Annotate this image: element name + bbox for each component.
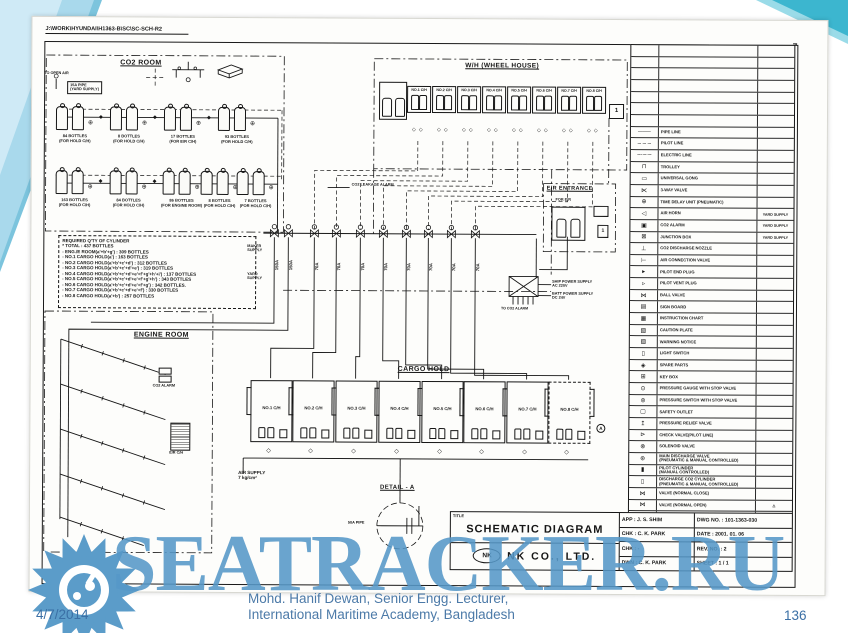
legend-description: PILOT VENT PLUG <box>658 278 757 289</box>
wh-release-cabinet: NO.5 C/H◇◇ <box>507 86 531 113</box>
legend-row <box>631 56 794 69</box>
legend-row: ⊓TROLLEY <box>631 161 794 174</box>
control-box-icon <box>321 429 329 438</box>
wh-cabinet-label: NO.4 C/H <box>482 88 506 92</box>
legend-row: ⋈VALVE (NORMAL CLOSE) <box>629 487 792 500</box>
legend-remark: YARD SUPPLY <box>757 209 793 220</box>
legend-remark <box>756 477 792 488</box>
legend-description <box>659 115 758 126</box>
cabinet-valves-icon: ◇◇ <box>483 127 505 133</box>
legend-description: UNIVERSAL GONG <box>659 173 758 184</box>
legend-description <box>659 69 758 80</box>
legend-symbol-icon: ⊗ <box>629 441 657 452</box>
cabinet-valves-icon: ◇◇ <box>583 128 605 134</box>
legend-row: ▹PILOT VENT PLUG <box>630 277 793 290</box>
legend-remark <box>758 104 794 115</box>
legend-row <box>631 45 794 57</box>
pilot-cylinder-icon <box>519 95 527 110</box>
legend-description: MAIN DISCHARGE VALVE (PNEUMATIC & MANUAL… <box>657 453 756 464</box>
co2-room-title: CO2 ROOM <box>120 59 161 67</box>
cargo-hold-label: NO.8 C/H <box>549 407 589 412</box>
co2-bottle-icon <box>234 107 246 131</box>
control-box-icon <box>492 430 500 439</box>
co2-bottle-icon <box>126 106 138 130</box>
slide-caption: Mohd. Hanif Dewan, Senior Engg. Lecturer… <box>248 591 515 623</box>
legend-remark <box>757 314 793 325</box>
legend-row: ◈SPARE PARTS <box>630 359 793 372</box>
required-qty-line: - NO.8 CARGO HOLD(a'+b') : 257 BOTTLES <box>62 293 252 299</box>
legend-row: ⊕TIME DELAY UNIT (PNEUMATIC) <box>631 196 794 209</box>
legend-symbol-icon: ▨ <box>630 336 658 347</box>
co2-bottle-icon <box>300 427 307 438</box>
legend-row: ▮PILOT CYLINDER (MANUAL CONTROLLED) <box>629 464 792 477</box>
pilot-cylinder-icon <box>436 95 444 110</box>
legend-symbol-icon <box>631 103 659 114</box>
legend-remark <box>757 337 793 348</box>
co2-bottle-icon <box>126 170 138 194</box>
pilot-cylinder-icon <box>570 219 580 238</box>
legend-remark: YARD SUPPLY <box>757 232 793 243</box>
legend-symbol-icon <box>631 45 659 56</box>
legend-remark <box>757 279 793 290</box>
pilot-cylinder-icon <box>494 95 502 110</box>
pipe-size-label: 70A <box>475 263 480 271</box>
air-supply-label: AIR SUPPLY 7 kg/cm² <box>238 470 265 481</box>
legend-remark <box>757 360 793 371</box>
hold-cylinders <box>386 428 415 439</box>
symbol-legend-table: ───PIPE LINE– – –PILOT LINE–·–·–ELECTRIC… <box>628 44 796 525</box>
legend-symbol-icon: ↥ <box>629 418 657 429</box>
co2-bottle-icon <box>110 106 122 130</box>
legend-row: ───PIPE LINE <box>631 126 794 139</box>
cargo-hold-label: NO.6 C/H <box>464 406 504 411</box>
scanned-schematic: J:\WORK\HYUNDAI\H1363-B\SC\SC-SCH-R2 7 C… <box>28 16 828 596</box>
group-valve-icon: ⊕ <box>142 120 147 126</box>
bottle-pair: ⊕ <box>218 104 258 131</box>
bottle-group-label: 163 BOTTLES (FOR HOLD C/H) <box>51 198 99 208</box>
bottle-group-label: 93 BOTTLES (FOR HOLD C/H) <box>213 135 261 145</box>
legend-remark <box>758 197 794 208</box>
slide: { "slide": { "date": "4/7/2014", "page":… <box>0 0 848 633</box>
legend-symbol-icon: ▯ <box>629 476 657 487</box>
pipe-size-label: 70A <box>406 263 411 271</box>
er-cabinet-label: FOR E/R <box>556 198 571 202</box>
pipe-size-box: 15A PIPE (YARD SUPPLY) <box>67 81 102 94</box>
legend-remark <box>758 139 794 150</box>
legend-row: ⋈BALL VALVE <box>630 289 793 302</box>
cabinet-valves-icon: ◇◇ <box>558 128 580 134</box>
pilot-cylinder-cabinet <box>379 82 407 120</box>
line-valve-icon: ◆ <box>153 115 157 121</box>
er-release-cabinet <box>551 207 585 241</box>
drawing-file-path: J:\WORK\HYUNDAI\H1363-B\SC\SC-SCH-R2 <box>45 26 188 35</box>
group-valve-icon: ⊕ <box>196 120 201 126</box>
maker-supply-label: MAKER SUPPLY <box>247 244 262 253</box>
co2-bottle-icon <box>267 427 274 438</box>
co2-bottle-icon <box>56 170 68 194</box>
page-number: 136 <box>784 608 807 623</box>
pilot-cylinder-icon <box>544 96 552 111</box>
legend-symbol-icon: ⊓ <box>631 162 659 173</box>
pipe-size-label: 150A <box>274 260 279 270</box>
legend-symbol-icon: ◁ <box>630 208 658 219</box>
co2-bottle-icon <box>471 428 478 439</box>
pipe-size-label: 70A <box>360 263 365 271</box>
pipe-size-label: 70A <box>314 263 319 271</box>
legend-row <box>631 79 794 92</box>
co2-bottle-group: ⊕163 BOTTLES (FOR HOLD C/H) <box>56 167 96 208</box>
legend-row: –·–·–ELECTRIC LINE <box>631 149 794 162</box>
legend-remark <box>756 407 792 418</box>
legend-remark <box>757 384 793 395</box>
legend-symbol-icon: ⋈ <box>629 500 657 511</box>
legend-description <box>659 80 758 91</box>
cargo-hold-label: NO.7 C/H <box>507 406 547 411</box>
cargo-hold-title: CARGO HOLD <box>398 366 450 374</box>
co2-bottle-icon <box>72 170 84 194</box>
cabinet-valves-icon: ◇◇ <box>408 127 430 133</box>
legend-row: ▧CAUTION PLATE <box>630 324 793 337</box>
legend-row: ⋉3-WAY VALVE <box>631 184 794 197</box>
legend-description: BALL VALVE <box>658 290 757 301</box>
co2-bottle-icon <box>72 106 84 130</box>
legend-description: SIGN BOARD <box>658 302 757 313</box>
legend-remark <box>757 325 793 336</box>
legend-remark <box>758 162 794 173</box>
legend-remark: YARD SUPPLY <box>757 221 793 232</box>
legend-description: CO2 ALARM <box>658 220 757 231</box>
group-valve-icon: ⊕ <box>195 184 200 190</box>
legend-description: VALVE (NORMAL CLOSE) <box>657 488 756 499</box>
co2-bottle-icon <box>343 428 350 439</box>
legend-description: PRESSURE SWITCH WITH STOP VALVE <box>657 395 756 406</box>
legend-remark <box>758 174 794 185</box>
legend-description: PRESSURE GAUGE WITH STOP VALVE <box>658 383 757 394</box>
hold-cylinders <box>429 428 458 439</box>
legend-symbol-icon: ◈ <box>630 360 658 371</box>
ship-power-label: SHIP POWER SUPPLY AC 220V <box>552 280 592 289</box>
legend-description: 3-WAY VALVE <box>659 185 758 196</box>
legend-row: ⊞KEY BOX <box>630 370 793 383</box>
legend-row: ▣CO2 ALARMYARD SUPPLY <box>630 219 793 232</box>
cargo-hold-label: NO.4 C/H <box>379 406 419 411</box>
legend-row: ⊚PRESSURE SWITCH WITH STOP VALVE <box>629 394 792 407</box>
bottle-pair: ⊕ <box>201 168 241 195</box>
co2-bottle-icon <box>556 429 563 440</box>
legend-symbol-icon: ▢ <box>629 406 657 417</box>
legend-description: PILOT CYLINDER (MANUAL CONTROLLED) <box>657 465 756 476</box>
wh-release-cabinet: NO.2 C/H◇◇ <box>432 86 456 113</box>
group-valve-icon: ⊕ <box>269 185 274 191</box>
legend-description: AIR CONNECTION VALVE <box>658 255 757 266</box>
legend-remark <box>757 244 793 255</box>
hold-valve-icon: ◇ <box>394 448 399 455</box>
legend-description: CO2 DISCHARGE NOZZLE <box>658 243 757 254</box>
bottle-group-label: 17 BOTTLES (FOR E/R C/H) <box>159 135 207 145</box>
hold-valve-icon: ◇ <box>437 448 442 455</box>
legend-symbol-icon: ⊙ <box>630 383 658 394</box>
legend-description: ELECTRIC LINE <box>659 150 758 161</box>
legend-row: ⊙PRESSURE GAUGE WITH STOP VALVE <box>630 382 793 395</box>
co2-bottle-icon <box>179 171 191 195</box>
cabinet-valves-icon: ◇◇ <box>433 127 455 133</box>
wh-cabinet-label: NO.7 C/H <box>557 88 581 92</box>
legend-description: SPARE PARTS <box>658 360 757 371</box>
legend-row: ▦INSTRUCTION CHART <box>630 312 793 325</box>
er-release-box <box>170 423 190 451</box>
co2-bottle-icon <box>386 428 393 439</box>
cargo-hold-unit: NO.7 C/H◇ <box>506 381 548 443</box>
to-co2-alarm-label: TO CO2 ALARM <box>501 306 528 310</box>
co2-alarm-icon <box>159 368 172 375</box>
legend-description <box>659 57 758 68</box>
legend-remark <box>757 372 793 383</box>
hold-cylinders <box>300 427 329 438</box>
wh-cabinet-label: NO.1 C/H <box>407 87 431 91</box>
co2-bottle-group: ⊕8 BOTTLES (FOR HOLD C/H) <box>110 103 150 144</box>
co2-bottle-icon <box>523 428 530 439</box>
cabinet-valves-icon: ◇◇ <box>508 127 530 133</box>
er-mark-box: 1 <box>597 225 608 238</box>
legend-row <box>631 114 794 127</box>
vent-label: TO OPEN AIR <box>44 71 69 75</box>
co2-bottle-icon <box>480 428 487 439</box>
cargo-hold-unit: NO.1 C/H◇ <box>250 380 292 442</box>
control-box-icon <box>364 430 372 439</box>
hold-cylinders <box>471 428 500 439</box>
legend-description: PRESSURE RELIEF VALVE <box>657 418 756 429</box>
wh-cabinet-label: NO.2 C/H <box>432 88 456 92</box>
legend-symbol-icon: ▧ <box>630 325 658 336</box>
legend-symbol-icon: ⊞ <box>630 371 658 382</box>
co2-bottle-icon <box>258 427 265 438</box>
legend-symbol-icon <box>631 57 659 68</box>
bottle-pair: ⊕ <box>56 167 96 194</box>
legend-row: ▸PILOT END PLUG <box>630 266 793 279</box>
pilot-cylinder-icon <box>536 96 544 111</box>
legend-row: – – –PILOT LINE <box>631 137 794 150</box>
legend-row: ⊛MAIN DISCHARGE VALVE (PNEUMATIC & MANUA… <box>629 452 792 465</box>
co2-bottle-icon <box>217 171 229 195</box>
bottle-pair: ⊕ <box>110 103 150 130</box>
legend-row: ▯LIGHT SWITCH <box>630 347 793 360</box>
wh-release-cabinet: NO.7 C/H◇◇ <box>557 87 581 114</box>
er-box-label: E/R C/H <box>169 451 183 455</box>
legend-description: PILOT END PLUG <box>658 267 757 278</box>
legend-symbol-icon: ⊳ <box>629 430 657 441</box>
co2-bottle-group: ⊕7 BOTTLES (FOR HOLD C/H) <box>237 168 277 209</box>
co2-bottle-icon <box>218 107 230 131</box>
legend-remark <box>757 267 793 278</box>
pilot-cylinder-icon <box>461 95 469 110</box>
legend-symbol-icon: ▭ <box>631 173 659 184</box>
legend-remark <box>758 116 794 127</box>
control-box-icon <box>577 431 585 440</box>
legend-symbol-icon: ⊕ <box>631 197 659 208</box>
yard-supply-label: YARD SUPPLY <box>247 272 262 281</box>
hold-cylinders <box>514 428 543 439</box>
caption-line-1: Mohd. Hanif Dewan, Senior Engg. Lecturer… <box>248 591 515 607</box>
pilot-cylinder-icon <box>556 219 566 238</box>
legend-row: ▨WARNING NOTICE <box>630 335 793 348</box>
legend-symbol-icon: ▦ <box>630 313 658 324</box>
legend-description: WARNING NOTICE <box>658 337 757 348</box>
pilot-cylinder-icon <box>469 95 477 110</box>
pilot-cylinder-icon <box>381 98 391 117</box>
engine-alarm-label: CO2 ALARM <box>153 384 175 388</box>
co2-bottle-icon <box>309 427 316 438</box>
hold-cylinders <box>343 428 372 439</box>
hold-valve-icon: ◇ <box>564 449 569 456</box>
engine-room-title: ENGINE ROOM <box>134 331 189 339</box>
caption-line-2: International Maritime Academy, Banglade… <box>248 607 515 623</box>
legend-remark <box>757 349 793 360</box>
legend-description: KEY BOX <box>658 372 757 383</box>
detail-a-title: DETAIL - A <box>380 485 415 492</box>
legend-symbol-icon: ⊢ <box>630 255 658 266</box>
pilot-cylinder-icon <box>486 95 494 110</box>
legend-remark <box>756 489 792 500</box>
legend-description: JUNCTION BOX <box>658 232 757 243</box>
group-valve-icon: ⊕ <box>142 184 147 190</box>
co2-bottle-icon <box>237 171 249 195</box>
co2-bottle-icon <box>201 171 213 195</box>
cargo-hold-label: NO.1 C/H <box>251 405 291 410</box>
wh-cabinet-label: NO.5 C/H <box>507 88 531 92</box>
line-valve-icon: ◆ <box>207 115 211 121</box>
cabinet-valves-icon: ◇◇ <box>533 128 555 134</box>
legend-row: ▤SIGN BOARD <box>630 300 793 313</box>
legend-remark: △ <box>756 500 792 511</box>
co2-bottle-group: ⊕84 BOTTLES (FOR HOLD C/H) <box>110 167 150 208</box>
wh-release-cabinet: NO.4 C/H◇◇ <box>482 86 506 113</box>
legend-description: PIPE LINE <box>659 127 758 138</box>
legend-remark <box>756 454 792 465</box>
legend-row: ◁AIR HORNYARD SUPPLY <box>630 207 793 220</box>
legend-remark <box>757 302 793 313</box>
legend-symbol-icon: – – – <box>631 138 659 149</box>
legend-symbol-icon: ▸ <box>630 267 658 278</box>
legend-description: SAFETY OUTLET <box>657 407 756 418</box>
pipe-size-label: 150A <box>288 260 293 270</box>
bottle-pair: ⊕ <box>164 104 204 131</box>
legend-symbol-icon: ▣ <box>630 220 658 231</box>
legend-symbol-icon: ⋈ <box>630 290 658 301</box>
pilot-cylinder-icon <box>586 96 594 111</box>
cargo-hold-label: NO.5 C/H <box>422 406 462 411</box>
legend-row <box>631 67 794 80</box>
co2-bottle-group: ⊕93 BOTTLES (FOR HOLD C/H) <box>218 104 258 145</box>
co2-bottle-icon <box>163 171 175 195</box>
control-box-icon <box>407 430 415 439</box>
legend-remark <box>756 395 792 406</box>
legend-description: CHECK VALVE(PILOT LINE) <box>657 430 756 441</box>
legend-symbol-icon: ⊚ <box>629 395 657 406</box>
legend-symbol-icon: ⊠ <box>630 232 658 243</box>
legend-row: ↥PRESSURE RELIEF VALVE <box>629 417 792 430</box>
wh-cabinet-label: NO.3 C/H <box>457 88 481 92</box>
legend-row: ▭UNIVERSAL GONG <box>631 172 794 185</box>
hold-valve-icon: ◇ <box>308 447 313 454</box>
co2-bottle-icon <box>180 107 192 131</box>
pipe-size-label: 70A <box>336 263 341 271</box>
legend-remark <box>757 256 793 267</box>
batt-power-label: BATT POWER SUPPLY DC 24V <box>552 292 593 301</box>
legend-remark <box>758 186 794 197</box>
wh-release-cabinet: NO.1 C/H◇◇ <box>407 86 431 113</box>
pilot-cylinder-icon <box>419 95 427 110</box>
legend-remark <box>756 430 792 441</box>
cargo-hold-unit: NO.4 C/H◇ <box>378 381 420 443</box>
legend-symbol-icon: ⋈ <box>629 488 657 499</box>
title-label: TITLE <box>453 513 464 518</box>
wh-release-cabinet: NO.8 C/H◇◇ <box>582 87 606 114</box>
bottle-group-label: 84 BOTTLES (FOR HOLD C/H) <box>105 198 153 208</box>
pilot-cylinder-icon <box>394 98 404 117</box>
legend-row: ⊳CHECK VALVE(PILOT LINE) <box>629 429 792 442</box>
legend-remark <box>758 92 794 103</box>
wh-mark-box: 1 <box>609 104 624 119</box>
required-qty-table: REQUIRED Q'TY OF CYLINDER* TOTAL : 437 B… <box>58 235 256 309</box>
wh-cabinet-label: NO.8 C/H <box>582 88 606 92</box>
legend-row: ⊥CO2 DISCHARGE NOZZLE <box>630 242 793 255</box>
cargo-hold-unit: NO.5 C/H◇ <box>421 381 463 443</box>
legend-description <box>659 92 758 103</box>
legend-description: LIGHT SWITCH <box>658 348 757 359</box>
legend-row <box>631 91 794 104</box>
wh-cabinet-label: NO.6 C/H <box>532 88 556 92</box>
legend-remark <box>757 291 793 302</box>
legend-symbol-icon: ▯ <box>630 348 658 359</box>
pilot-cylinder-icon <box>594 96 602 111</box>
hold-cylinders <box>556 429 585 440</box>
legend-remark <box>758 127 794 138</box>
control-box-icon <box>535 431 543 440</box>
line-valve-icon: ◆ <box>99 114 103 120</box>
legend-description: TIME DELAY UNIT (PNEUMATIC) <box>659 197 758 208</box>
slide-date: 4/7/2014 <box>36 607 89 622</box>
legend-remark <box>756 465 792 476</box>
legend-row: ▢SAFETY OUTLET <box>629 405 792 418</box>
legend-remark <box>758 46 794 57</box>
legend-row: ▯DISCHARGE CO2 CYLINDER (PNEUMATIC & MAN… <box>629 475 792 488</box>
legend-description: AIR HORN <box>658 208 757 219</box>
cargo-hold-unit: NO.6 C/H◇ <box>463 381 505 443</box>
legend-remark <box>756 442 792 453</box>
pipe-size-label: 70A <box>383 263 388 271</box>
co2-bottle-icon <box>56 106 68 130</box>
pilot-cylinder-icon <box>569 96 577 111</box>
air-horn-icon <box>159 376 172 383</box>
bottle-group-label: 8 BOTTLES (FOR HOLD C/H) <box>105 134 153 144</box>
leak-alarm-label: CO2 LEAKAGE ALARM <box>352 183 394 188</box>
wh-release-cabinet: NO.6 C/H◇◇ <box>532 87 556 114</box>
cargo-hold-unit: NO.2 C/H◇ <box>292 380 334 442</box>
legend-symbol-icon: ▤ <box>630 301 658 312</box>
legend-description: DISCHARGE CO2 CYLINDER (PNEUMATIC & MANU… <box>657 476 756 487</box>
legend-symbol-icon: ─── <box>631 127 659 138</box>
group-valve-icon: ⊕ <box>88 120 93 126</box>
legend-symbol-icon: –·–·– <box>631 150 659 161</box>
legend-symbol-icon <box>631 80 659 91</box>
legend-remark <box>756 419 792 430</box>
wheel-house-title: W/H (WHEEL HOUSE) <box>465 62 539 70</box>
co2-bottle-icon <box>565 429 572 440</box>
legend-symbol-icon: ⋉ <box>631 185 659 196</box>
co2-bottle-icon <box>253 171 265 195</box>
bottle-pair: ⊕ <box>163 168 203 195</box>
wh-release-cabinet: NO.3 C/H◇◇ <box>457 86 481 113</box>
